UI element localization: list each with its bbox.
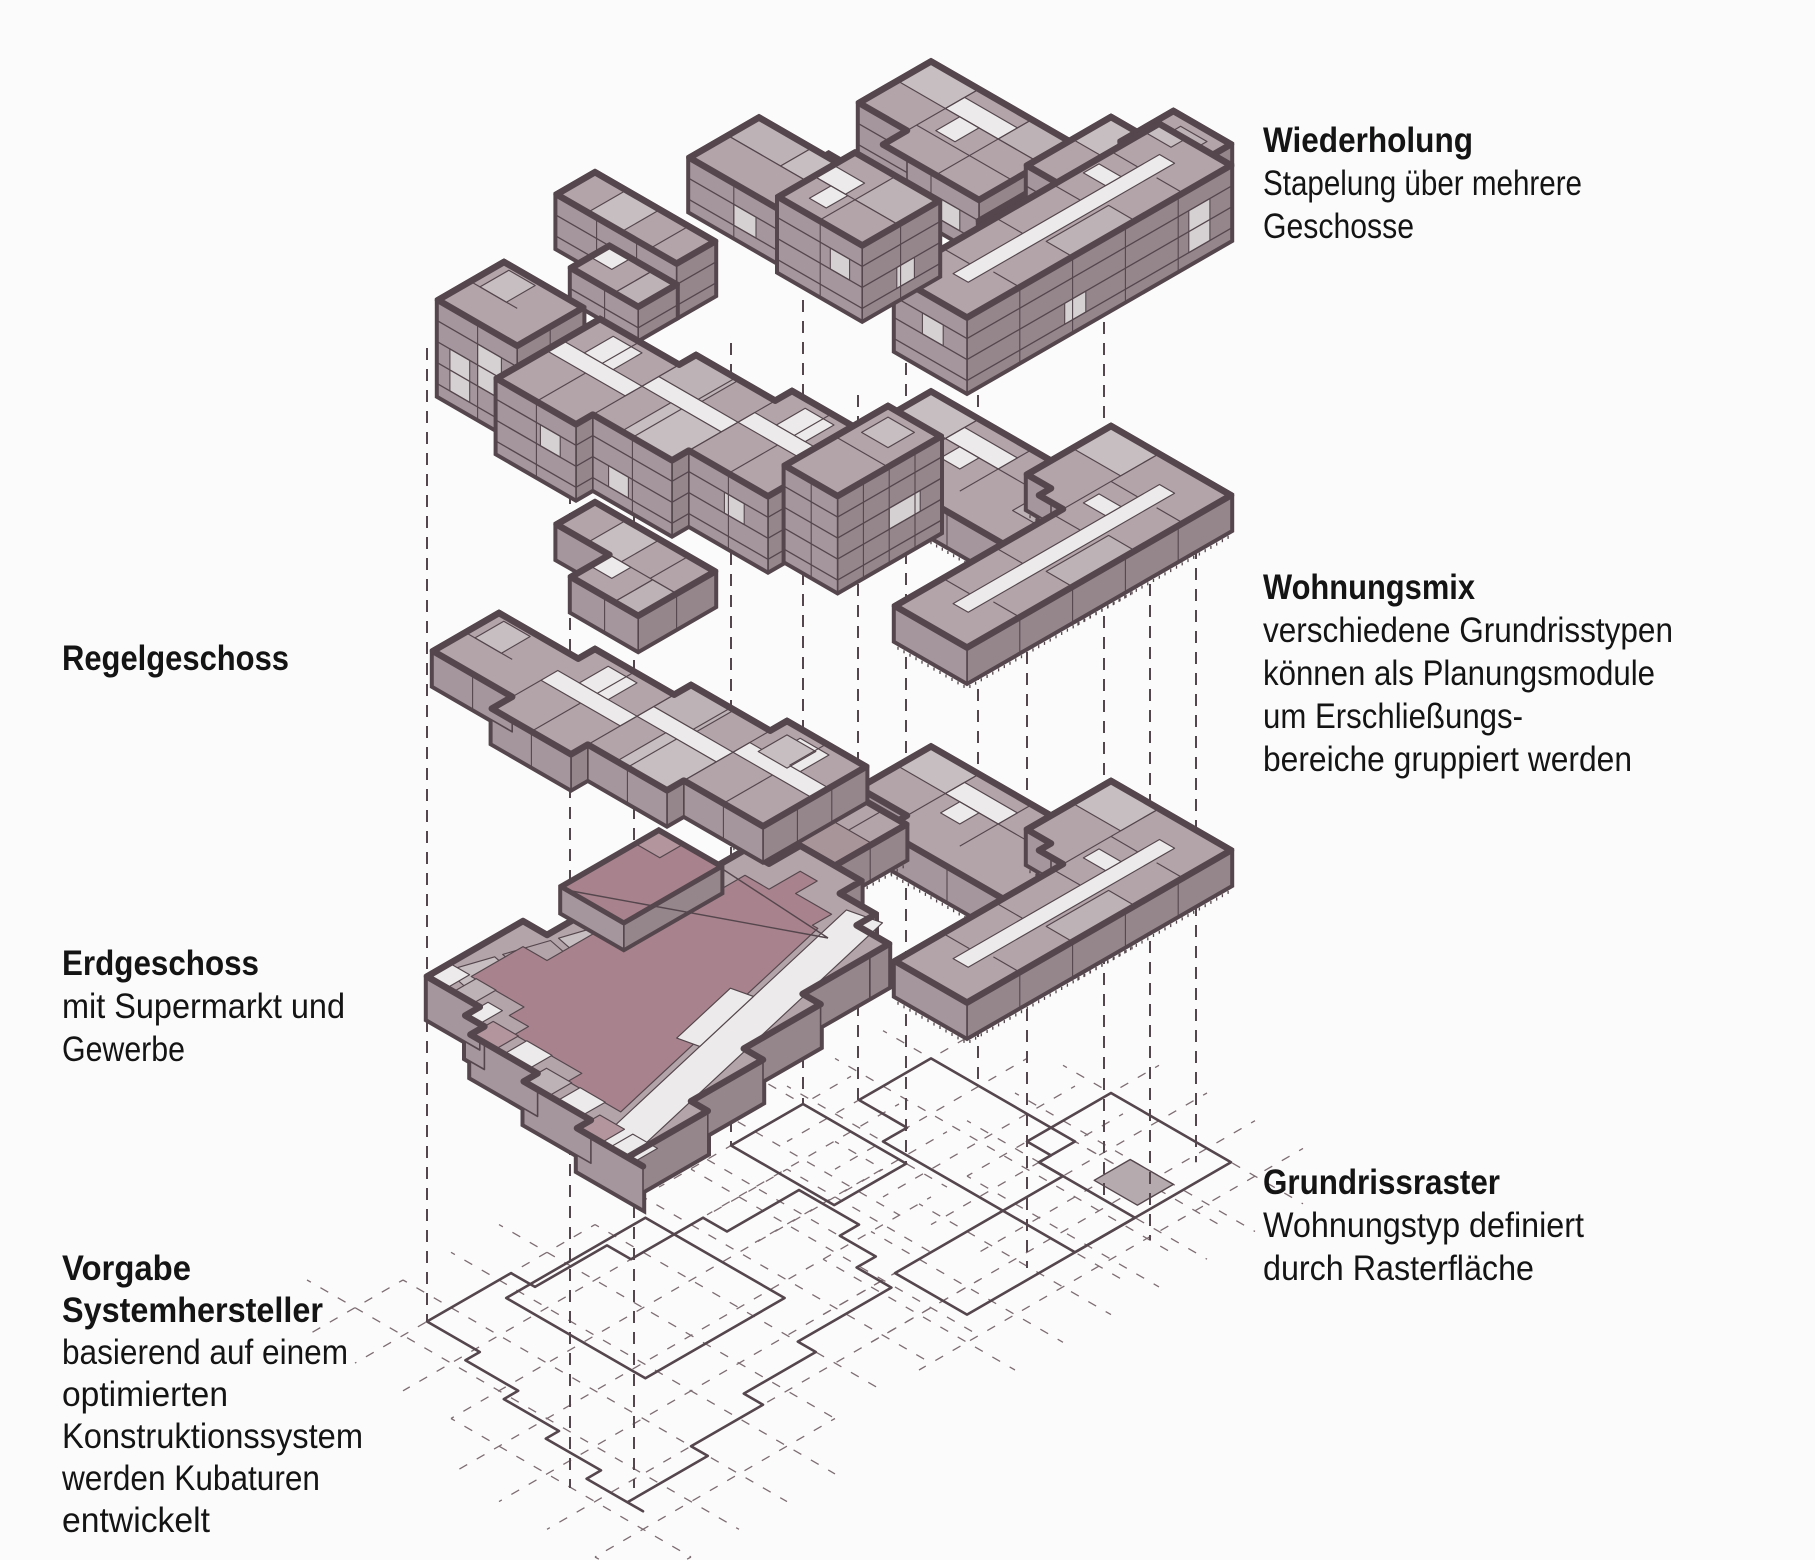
svg-text:durch Rasterfläche: durch Rasterfläche (1263, 1249, 1534, 1288)
svg-text:können als Planungsmodule: können als Planungsmodule (1263, 654, 1655, 693)
svg-text:Gewerbe: Gewerbe (62, 1030, 185, 1069)
svg-text:verschiedene Grundrisstypen: verschiedene Grundrisstypen (1263, 611, 1673, 650)
svg-text:Stapelung über mehrere: Stapelung über mehrere (1263, 164, 1582, 203)
svg-text:mit Supermarkt und: mit Supermarkt und (62, 987, 345, 1026)
svg-text:Wohnungsmix: Wohnungsmix (1263, 568, 1475, 607)
svg-text:Systemhersteller: Systemhersteller (62, 1291, 323, 1330)
svg-text:optimierten: optimierten (62, 1375, 228, 1414)
svg-text:Wiederholung: Wiederholung (1263, 121, 1473, 160)
svg-text:Vorgabe: Vorgabe (62, 1249, 191, 1288)
svg-text:Wohnungstyp definiert: Wohnungstyp definiert (1263, 1206, 1584, 1245)
svg-text:entwickelt: entwickelt (62, 1501, 210, 1540)
svg-text:Regelgeschoss: Regelgeschoss (62, 639, 289, 678)
svg-text:um Erschließungs-: um Erschließungs- (1263, 697, 1523, 736)
svg-text:bereiche gruppiert werden: bereiche gruppiert werden (1263, 740, 1632, 779)
svg-text:Geschosse: Geschosse (1263, 207, 1414, 246)
svg-text:Konstruktionssystem: Konstruktionssystem (62, 1417, 363, 1456)
svg-text:basierend auf einem: basierend auf einem (62, 1333, 348, 1372)
svg-text:werden Kubaturen: werden Kubaturen (61, 1459, 320, 1498)
svg-text:Grundrissraster: Grundrissraster (1263, 1163, 1500, 1202)
svg-text:Erdgeschoss: Erdgeschoss (62, 944, 259, 983)
